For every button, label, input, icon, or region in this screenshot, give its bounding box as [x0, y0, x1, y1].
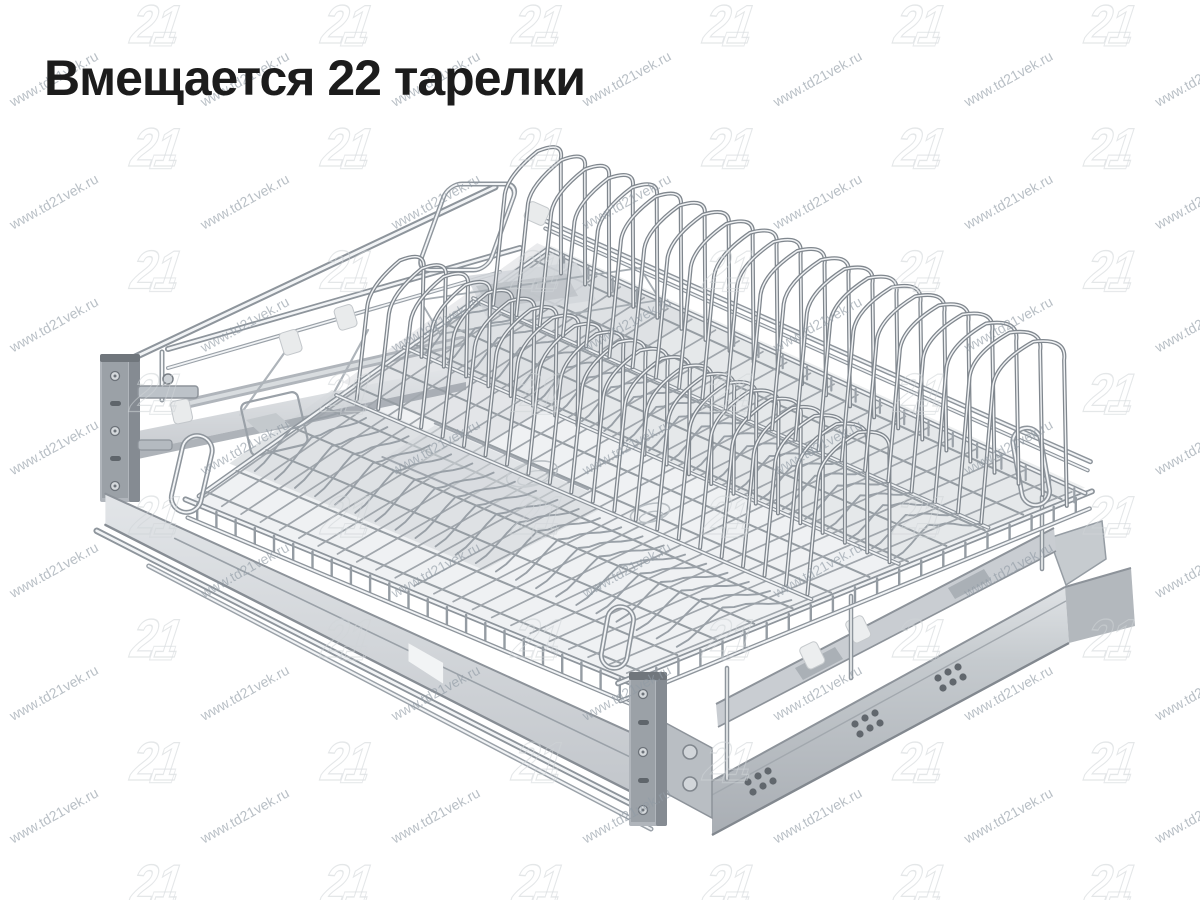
svg-text:Вмещается 22 тарелки: Вмещается 22 тарелки: [44, 50, 585, 106]
